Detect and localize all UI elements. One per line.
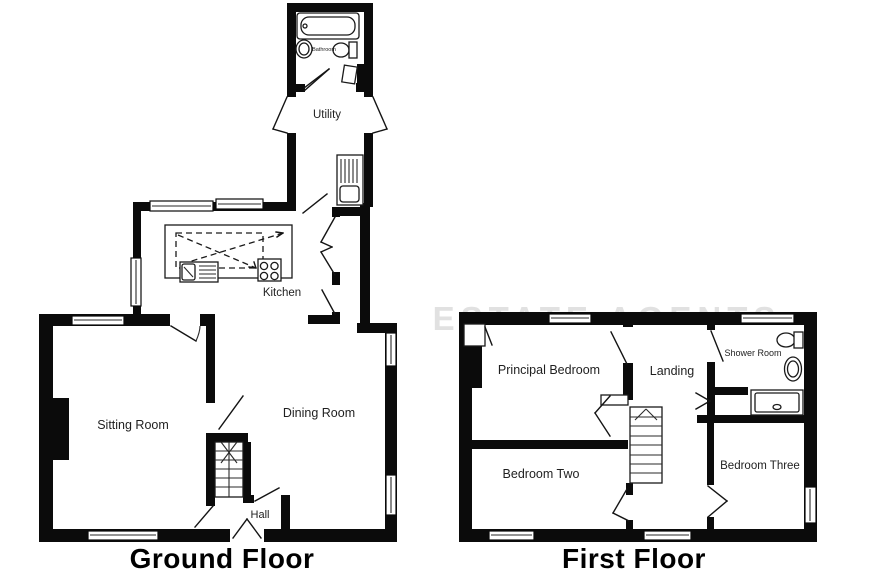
window xyxy=(150,201,213,211)
window xyxy=(805,487,816,523)
toilet xyxy=(777,332,803,348)
room-label-utility: Utility xyxy=(313,109,341,121)
utility-sink-unit xyxy=(337,155,363,205)
room-label-kitchen: Kitchen xyxy=(263,287,301,299)
room-label-hall: Hall xyxy=(251,509,270,521)
window xyxy=(72,316,124,325)
gf-stairs xyxy=(215,442,243,497)
floorplan-canvas: ESTATE AGENTS xyxy=(0,0,878,580)
utility-right-door xyxy=(373,97,387,133)
room-label-dining-room: Dining Room xyxy=(283,406,355,420)
ground-floor-title: Ground Floor xyxy=(130,543,315,574)
room-label-bathroom: Bathroom xyxy=(312,47,336,53)
first-floor-title: First Floor xyxy=(562,543,706,574)
washbasin xyxy=(296,40,312,58)
floorplan-drawing: ESTATE AGENTS xyxy=(0,0,878,580)
window xyxy=(386,333,396,366)
window xyxy=(489,531,534,540)
kitchen-sink-unit xyxy=(180,262,218,282)
room-label-landing: Landing xyxy=(650,364,695,378)
bathtub xyxy=(297,13,359,39)
window xyxy=(386,475,396,515)
window xyxy=(131,258,141,306)
window xyxy=(549,314,591,323)
utility-left-door xyxy=(273,97,287,133)
window xyxy=(88,531,158,540)
first-floor-plan: Principal Bedroom Landing Shower Room Be… xyxy=(459,312,817,574)
room-label-sitting-room: Sitting Room xyxy=(97,418,169,432)
ff-stairs xyxy=(630,407,662,483)
window xyxy=(644,531,691,540)
room-label-bedroom-three: Bedroom Three xyxy=(720,460,800,472)
room-label-shower-room: Shower Room xyxy=(724,348,781,358)
washbasin xyxy=(785,357,802,381)
toilet xyxy=(333,42,357,58)
window xyxy=(741,314,794,323)
window xyxy=(216,199,263,209)
shower-tray xyxy=(751,390,803,415)
room-label-principal-bedroom: Principal Bedroom xyxy=(498,363,600,377)
hob xyxy=(258,259,281,281)
room-label-bedroom-two: Bedroom Two xyxy=(503,467,580,481)
ground-floor-plan: Bathroom Utility Kitchen Sitting Room Di… xyxy=(39,3,397,574)
